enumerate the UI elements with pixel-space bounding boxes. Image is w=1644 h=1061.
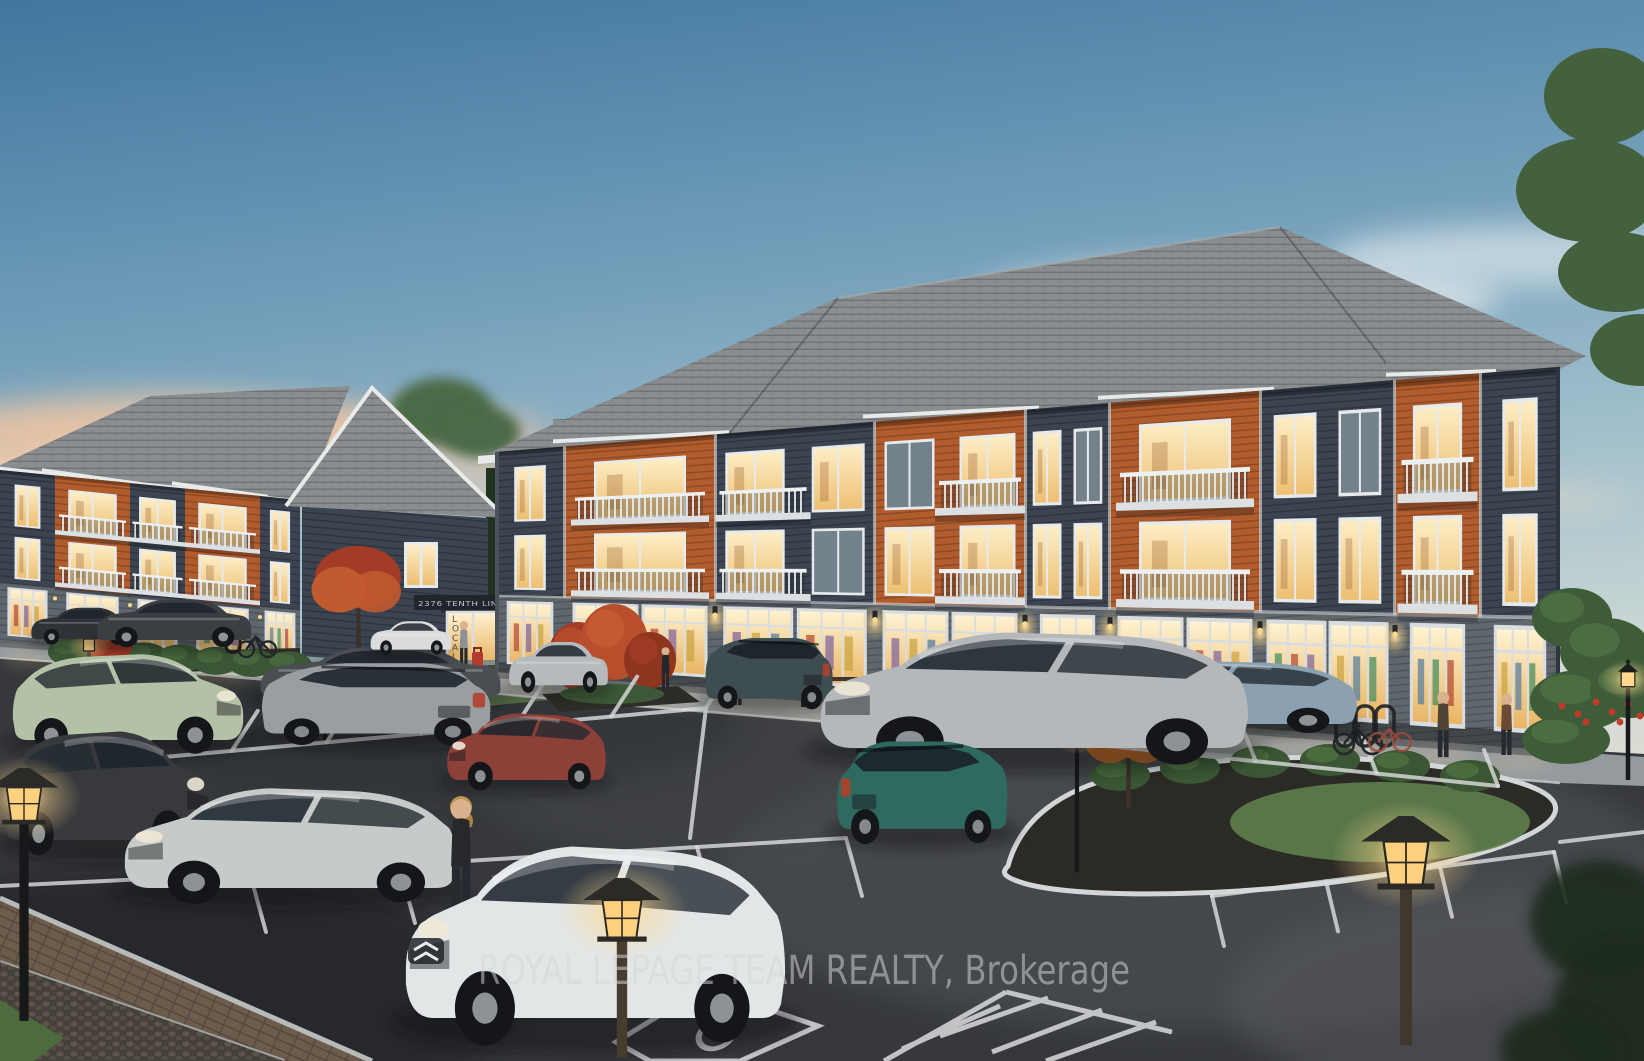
street-lamp-right-lantern: [1621, 672, 1635, 687]
window-interior: [274, 520, 277, 545]
storefront-light-pool: [3, 649, 52, 667]
bay-overhang-roof: [1386, 351, 1496, 373]
window-interior: [1281, 539, 1288, 589]
window-mullion: [1087, 431, 1089, 501]
window-mullion: [1294, 417, 1296, 494]
lantern-left-foreground-post: [19, 821, 28, 1021]
sconce-light: [872, 617, 877, 622]
storefront-display: [278, 628, 281, 649]
island-bush: [1376, 752, 1409, 768]
window-mullion: [837, 448, 839, 509]
corner-bush: [1540, 593, 1584, 623]
window-interior: [520, 480, 525, 513]
balcony-top-rail: [939, 569, 1021, 573]
corner-trim: [563, 446, 566, 597]
window-interior: [820, 462, 829, 502]
corner-trim: [1393, 380, 1396, 615]
window-interior: [20, 495, 24, 520]
red-bush: [629, 636, 658, 664]
hedge-bush: [197, 649, 223, 663]
window-mullion: [909, 530, 911, 594]
lantern-left-foreground-base: [2, 820, 46, 825]
window-interior: [1038, 449, 1042, 493]
sconce-light: [53, 596, 57, 600]
window-interior: [1079, 542, 1083, 587]
sconce-light: [712, 613, 717, 618]
window-interior: [520, 548, 525, 581]
window-mullion: [837, 531, 839, 592]
building-corner-trim: [495, 452, 499, 673]
window-interior: [1346, 538, 1353, 589]
sconce-light: [128, 603, 132, 607]
window-mullion: [1359, 521, 1361, 601]
window-mullion: [420, 545, 423, 585]
storefront-display: [14, 605, 18, 627]
window-mullion: [1294, 522, 1296, 599]
storefront-mullion: [1429, 628, 1431, 723]
window-interior: [1508, 421, 1513, 476]
window-interior: [892, 544, 900, 585]
street-lamp-right-pole: [1626, 688, 1631, 780]
window-mullion: [1046, 527, 1048, 596]
red-flower: [1637, 713, 1644, 720]
window-mullion: [1519, 517, 1521, 602]
lantern-walkway-center-base: [597, 937, 646, 942]
sconce-light: [1392, 631, 1397, 636]
street-lamp-right-finial: [1626, 660, 1631, 665]
window-mullion: [27, 487, 29, 526]
window-mullion: [279, 564, 281, 602]
balcony-railing: [721, 490, 804, 515]
balcony-slab: [1398, 603, 1478, 614]
red-flower: [1609, 709, 1616, 716]
window-interior: [274, 571, 277, 596]
storefront-mullion: [1512, 630, 1514, 728]
balcony-top-rail: [719, 569, 806, 573]
red-tree-canopy: [349, 571, 401, 613]
storefront-mullion: [21, 590, 23, 635]
island-bush: [1446, 762, 1479, 778]
corner-trim: [1479, 373, 1482, 617]
lantern-bottom-right-base: [1378, 884, 1435, 890]
storefront-display: [24, 605, 28, 627]
balcony-railing: [1404, 574, 1472, 605]
storefront-display: [285, 629, 288, 650]
storefront-mullion: [1527, 630, 1529, 729]
sconce-glow: [1246, 615, 1274, 651]
sconce-light: [1257, 628, 1262, 633]
sign-letter: O: [452, 625, 459, 635]
address-sign-text: 2376 TENTH LINE: [418, 599, 504, 608]
sconce-glow: [1381, 619, 1409, 655]
window-mullion: [1519, 402, 1521, 487]
balcony-railing: [1122, 573, 1248, 601]
red-flower: [1575, 711, 1582, 718]
storefront-display: [526, 624, 531, 652]
corner-bush: [1569, 623, 1620, 657]
storefront-mullion: [842, 612, 844, 683]
balcony-railing: [941, 481, 1019, 508]
window-mullion: [27, 540, 29, 579]
corner-trim: [1108, 403, 1111, 609]
storefront-display: [845, 636, 853, 671]
storefront-display: [1515, 663, 1521, 710]
sign-letter: L: [452, 615, 457, 625]
balcony-top-rail: [1120, 569, 1250, 574]
window-mullion: [909, 443, 911, 507]
window-interior: [1281, 435, 1288, 485]
lantern-bottom-right-post: [1400, 885, 1412, 1045]
balcony-top-rail: [575, 568, 705, 572]
car-dark-teal-hatchback: [706, 638, 833, 709]
sconce-glow: [861, 605, 889, 641]
red-flower: [1617, 719, 1624, 726]
corner-trim: [873, 422, 876, 605]
red-bush: [587, 610, 624, 648]
window-mullion: [279, 512, 281, 550]
window-interior: [1508, 536, 1513, 591]
storefront-mullion: [684, 608, 686, 673]
car-teal-suv: [837, 742, 1007, 845]
sconce-light: [1107, 623, 1112, 628]
red-flower: [1583, 719, 1590, 726]
rendering-image: 2376 TENTH LINE LOCAL ROYAL LEPAGE TEAM …: [0, 0, 1644, 1061]
window-mullion: [1087, 526, 1089, 596]
balcony-top-rail: [1402, 570, 1474, 575]
corner-bush: [1540, 675, 1595, 705]
red-flower: [1593, 699, 1600, 706]
corner-trim: [1259, 391, 1262, 612]
sconce-light: [258, 615, 262, 619]
storefront-mullion: [523, 604, 525, 662]
window-interior: [20, 548, 24, 573]
window-mullion: [1359, 413, 1361, 493]
storefront-display: [514, 623, 519, 651]
balcony-railing: [1404, 461, 1472, 493]
sconce-glow: [701, 600, 729, 636]
sign-letter: C: [452, 634, 458, 644]
screenshot-rendering: 2376 TENTH LINE LOCAL ROYAL LEPAGE TEAM …: [0, 0, 1644, 1061]
balcony-railing: [577, 571, 703, 592]
corner-bush: [1531, 720, 1579, 744]
window-mullion: [529, 537, 531, 588]
storefront-display: [1369, 657, 1376, 702]
red-flower: [1559, 703, 1566, 710]
window-mullion: [1046, 434, 1048, 503]
storefront-display: [270, 628, 273, 649]
watermark-text: ROYAL LEPAGE TEAM REALTY, Brokerage: [478, 948, 1130, 994]
car-silver-crossover: [262, 663, 490, 746]
window-mullion: [529, 468, 531, 519]
balcony-railing: [941, 572, 1019, 597]
sconce-light: [1022, 621, 1027, 626]
storefront-display: [1418, 659, 1424, 705]
window-interior: [1038, 542, 1042, 586]
balcony-railing: [721, 572, 804, 594]
storefront-display: [687, 630, 695, 662]
